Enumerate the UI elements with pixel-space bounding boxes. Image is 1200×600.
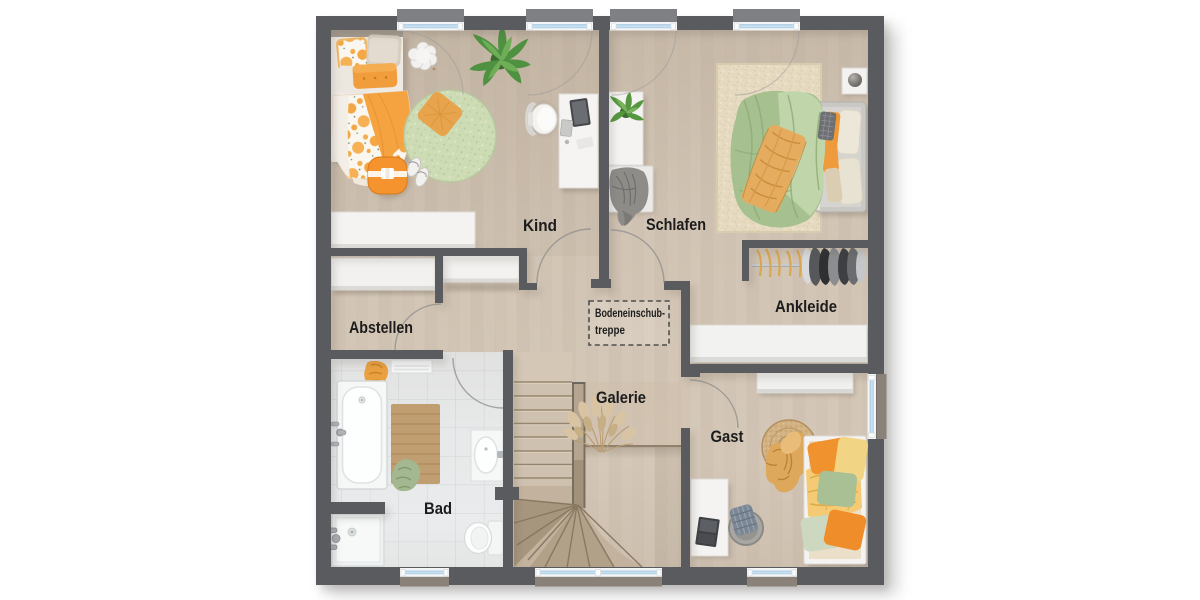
svg-text:Gast: Gast [711,428,744,446]
svg-text:treppe: treppe [595,323,625,337]
svg-text:Bad: Bad [424,500,452,518]
svg-text:Galerie: Galerie [596,389,646,407]
svg-text:Bodeneinschub-: Bodeneinschub- [595,306,665,320]
svg-text:Schlafen: Schlafen [646,216,706,234]
svg-text:Abstellen: Abstellen [349,319,413,337]
svg-text:Kind: Kind [523,217,557,235]
svg-text:Ankleide: Ankleide [775,298,837,316]
